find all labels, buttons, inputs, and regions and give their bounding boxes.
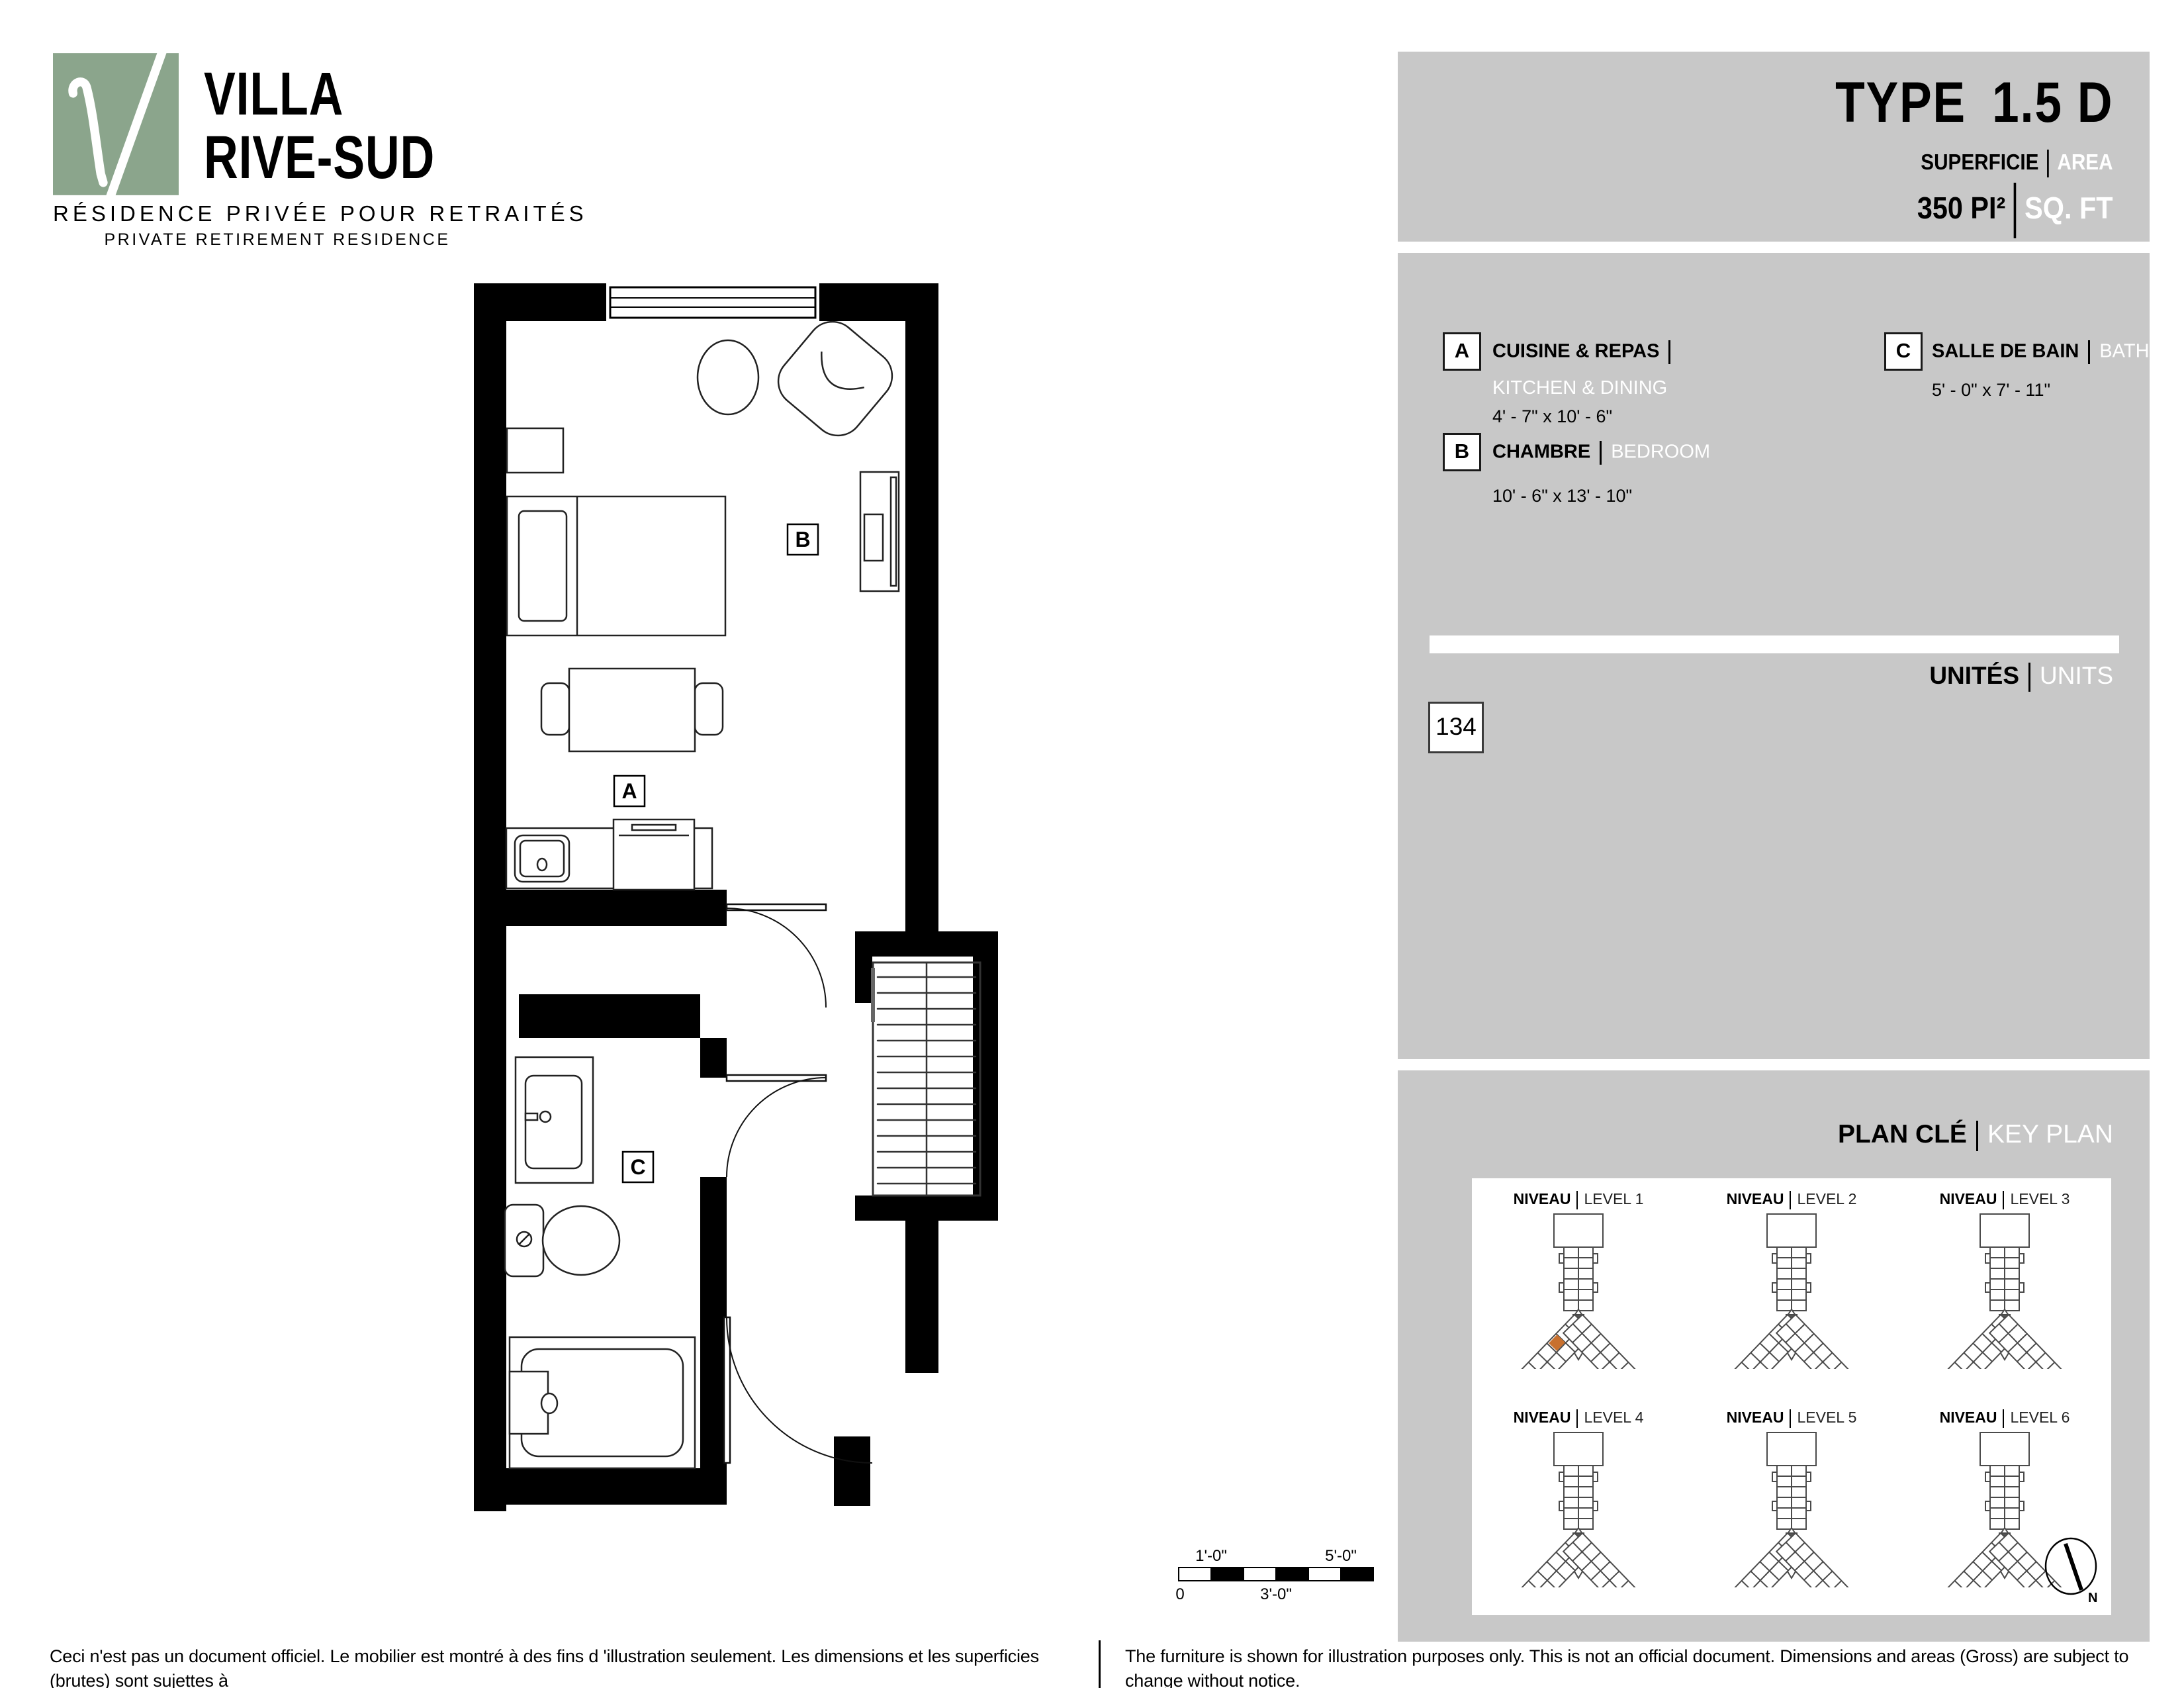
disclaimer-english: The furniture is shown for illustration … [1125, 1644, 2171, 1688]
window [606, 283, 819, 321]
unit-type-label: TYPE [1835, 71, 1966, 134]
brand-tagline-en: PRIVATE RETIREMENT RESIDENCE [53, 230, 502, 250]
floorplan-sheet: VILLA RIVE-SUD RÉSIDENCE PRIVÉE POUR RET… [0, 0, 2184, 1688]
scale-label-3ft: 3'-0" [1260, 1585, 1292, 1603]
niveau-label: NIVEAU [1940, 1409, 1997, 1426]
legend-title-c: SALLE DE BAINBATHROOM [1932, 340, 2184, 364]
level-label: LEVEL 2 [1797, 1190, 1856, 1207]
brand-name-line1: VILLA [204, 64, 343, 124]
level-label: LEVEL 1 [1584, 1190, 1643, 1207]
niveau-label: NIVEAU [1514, 1190, 1571, 1207]
legend-dims-a: 4' - 7" x 10' - 6" [1492, 406, 1612, 427]
brand-name-line2: RIVE-SUD [204, 127, 435, 188]
unit-floorplan-drawing: B A C [463, 278, 1026, 1516]
legend-name-en-b: BEDROOM [1611, 442, 1710, 463]
keyplan-level-1-label: NIVEAULEVEL 1 [1472, 1190, 1685, 1209]
divider [2088, 340, 2090, 364]
area-label-row: SUPERFICIEAREA [1921, 150, 2113, 177]
scale-label-1ft: 1'-0" [1195, 1548, 1227, 1565]
legend-name-en-c: BATHROOM [2099, 341, 2184, 362]
bathtub [510, 1337, 695, 1468]
niveau-label: NIVEAU [1514, 1409, 1571, 1426]
unit-type-title: TYPE1.5 D [1835, 70, 2113, 136]
area-value-fr: 350 PI² [1917, 191, 2005, 225]
keyplan-level-3-label: NIVEAULEVEL 3 [1898, 1190, 2111, 1209]
area-label-en: AREA [2058, 150, 2113, 174]
scale-label-0: 0 [1175, 1585, 1184, 1603]
divider [1976, 1121, 1978, 1151]
area-value-en: SQ. FT [2025, 191, 2113, 225]
doors [724, 904, 872, 1463]
level-label: LEVEL 3 [2010, 1190, 2070, 1207]
level-label: LEVEL 5 [1797, 1409, 1856, 1426]
keyplan-heading: PLAN CLÉKEY PLAN [1838, 1120, 2113, 1151]
keyplan-white-box: NIVEAULEVEL 1 NIVEAULEVEL 2 NIVEAULEVEL … [1472, 1178, 2111, 1615]
divider [2048, 150, 2050, 177]
room-label-b: B [795, 528, 810, 551]
legend-name-fr-a: CUISINE & REPAS [1492, 341, 1659, 362]
legend-key-c: C [1884, 332, 1923, 371]
unit-type-panel: TYPE1.5 D SUPERFICIEAREA 350 PI²SQ. FT [1398, 52, 2150, 242]
niveau-label: NIVEAU [1940, 1190, 1997, 1207]
bathroom-door-leaf [727, 1075, 826, 1081]
disclaimer-french: Ceci n'est pas un document officiel. Le … [50, 1644, 1062, 1688]
footer-divider [1099, 1640, 1101, 1688]
brand-logo: VILLA RIVE-SUD RÉSIDENCE PRIVÉE POUR RET… [53, 53, 503, 258]
units-label-en: UNITS [2040, 662, 2113, 689]
keyplan-level-5-label: NIVEAULEVEL 5 [1685, 1409, 1898, 1428]
keyplan-building-level-2 [1725, 1210, 1858, 1369]
room-label-c: C [630, 1155, 645, 1179]
legend-key-b: B [1443, 433, 1481, 471]
stairwell [873, 962, 980, 1196]
legend-panel: A CUISINE & REPAS KITCHEN & DINING 4' - … [1398, 253, 2150, 1059]
legend-dims-b: 10' - 6" x 13' - 10" [1492, 486, 1632, 506]
unit-number-badge: 134 [1428, 702, 1484, 753]
north-arrow-icon: N [2038, 1534, 2111, 1607]
keyplan-building-level-1 [1512, 1210, 1645, 1369]
level-label: LEVEL 6 [2010, 1409, 2070, 1426]
legend-title-a: CUISINE & REPAS [1492, 340, 1680, 364]
white-divider-bar [1430, 635, 2119, 653]
legend-name-en-a: KITCHEN & DINING [1492, 377, 1667, 399]
area-label-fr: SUPERFICIE [1921, 150, 2039, 174]
round-side-table [698, 340, 758, 414]
dining-chair-right [695, 683, 723, 735]
niveau-label: NIVEAU [1727, 1190, 1784, 1207]
bathroom-door-swing [727, 1078, 826, 1177]
toilet [505, 1205, 619, 1276]
keyplan-level-2-label: NIVEAULEVEL 2 [1685, 1190, 1898, 1209]
dining-table [569, 669, 695, 751]
divider [2028, 663, 2030, 692]
disclaimer-en-line1: The furniture is shown for illustration … [1125, 1646, 2128, 1688]
keyplan-level-6-label: NIVEAULEVEL 6 [1898, 1409, 2111, 1428]
units-label-fr: UNITÉS [1929, 662, 2019, 689]
room-label-a: A [621, 779, 637, 803]
legend-key-a: A [1443, 332, 1481, 371]
keyplan-building-level-4 [1512, 1429, 1645, 1587]
divider [1600, 441, 1602, 465]
divider [2003, 1191, 2004, 1209]
dining-chair-left [541, 683, 569, 735]
bathroom-vanity [516, 1057, 593, 1183]
brand-logo-icon [53, 53, 179, 195]
brand-tagline-fr: RÉSIDENCE PRIVÉE POUR RETRAITÉS [53, 201, 502, 226]
divider [2014, 183, 2017, 238]
legend-title-b: CHAMBREBEDROOM [1492, 441, 1710, 465]
keyplan-panel: PLAN CLÉKEY PLAN [1398, 1070, 2150, 1642]
divider [1668, 340, 1670, 364]
interior-door-swing [727, 908, 826, 1008]
keyplan-building-level-5 [1725, 1429, 1858, 1587]
level-label: LEVEL 4 [1584, 1409, 1643, 1426]
keyplan-level-4-label: NIVEAULEVEL 4 [1472, 1409, 1685, 1428]
units-heading: UNITÉSUNITS [1929, 662, 2113, 692]
keyplan-title-en: KEY PLAN [1987, 1120, 2113, 1149]
bed [507, 496, 725, 635]
nightstand [507, 428, 563, 473]
divider [1576, 1191, 1578, 1209]
disclaimer-fr-line1: Ceci n'est pas un document officiel. Le … [50, 1646, 1039, 1688]
divider [2003, 1409, 2004, 1428]
keyplan-title-fr: PLAN CLÉ [1838, 1120, 1967, 1149]
divider [1576, 1409, 1578, 1428]
area-value-row: 350 PI²SQ. FT [1917, 183, 2113, 238]
lounge-chair [768, 312, 903, 446]
legend-dims-c: 5' - 0" x 7' - 11" [1932, 380, 2050, 400]
niveau-label: NIVEAU [1727, 1409, 1784, 1426]
stove [614, 820, 694, 890]
legend-name-fr-c: SALLE DE BAIN [1932, 341, 2079, 362]
tv-console [860, 472, 899, 591]
divider [1790, 1409, 1791, 1428]
legend-name-fr-b: CHAMBRE [1492, 442, 1590, 463]
scale-bar: 1'-0" 5'-0" 0 3'-0" [1175, 1548, 1393, 1607]
keyplan-building-level-3 [1938, 1210, 2071, 1369]
north-label: N [2088, 1591, 2097, 1605]
unit-type-value: 1.5 D [1992, 71, 2113, 134]
entry-door-leaf [724, 1317, 730, 1463]
divider [1790, 1191, 1791, 1209]
scale-label-5ft: 5'-0" [1325, 1548, 1357, 1565]
